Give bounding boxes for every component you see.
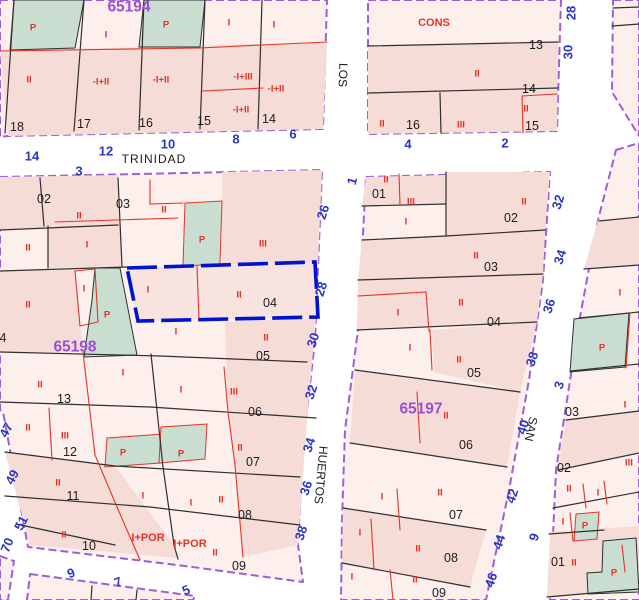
parcel-number-label: 14 bbox=[522, 82, 536, 96]
floor-label: I bbox=[142, 491, 145, 502]
parcel-number-label: 03 bbox=[565, 405, 579, 419]
floor-label: II bbox=[25, 300, 30, 311]
parcel-number-label: 13 bbox=[529, 38, 543, 52]
parcel-number-label: 15 bbox=[197, 114, 211, 128]
green-parcel[interactable] bbox=[10, 0, 84, 50]
cadastral-map: PIPIIII-I+II-I+II-I+III-I+II-I+IICONSIII… bbox=[0, 0, 639, 600]
floor-label: I bbox=[381, 492, 384, 503]
parcel-number-label: 16 bbox=[406, 118, 420, 132]
floor-label: II bbox=[473, 251, 478, 262]
floor-label: II bbox=[412, 575, 417, 586]
floor-label: I bbox=[405, 217, 408, 228]
house-number-label: 46 bbox=[482, 571, 501, 589]
floor-label: I bbox=[597, 488, 600, 499]
parcel-number-label: 08 bbox=[444, 551, 458, 565]
floor-label: P bbox=[163, 20, 170, 31]
parcel-number-label: 05 bbox=[467, 366, 481, 380]
house-number-label: 70 bbox=[0, 535, 17, 554]
floor-label: II bbox=[437, 488, 442, 499]
parcel-number-label: 07 bbox=[449, 508, 463, 522]
floor-label: -I+III bbox=[233, 72, 252, 83]
floor-label: III bbox=[457, 120, 465, 131]
floor-label: I bbox=[105, 30, 108, 41]
floor-label: II bbox=[474, 69, 479, 80]
floor-label: II bbox=[236, 290, 241, 301]
floor-label: P bbox=[199, 235, 206, 246]
parcel-number-label: 01 bbox=[372, 187, 386, 201]
parcel-number-label: 12 bbox=[63, 445, 77, 459]
street-name-label: SAN bbox=[522, 415, 541, 442]
floor-label: I+POR bbox=[173, 538, 206, 550]
floor-label: -I+II bbox=[233, 105, 250, 116]
house-number-label: 10 bbox=[161, 137, 175, 152]
floor-label: P bbox=[178, 449, 185, 460]
floor-label: II bbox=[571, 558, 576, 569]
house-number-label: 1 bbox=[344, 176, 360, 187]
parcel-number-label: 08 bbox=[238, 508, 252, 522]
parcel-number-label: 06 bbox=[248, 405, 262, 419]
floor-label: -I+II bbox=[268, 84, 285, 95]
green-parcel[interactable] bbox=[105, 434, 163, 467]
floor-label: II bbox=[263, 333, 268, 344]
floor-label: II bbox=[161, 205, 166, 216]
floor-label: II bbox=[76, 211, 81, 222]
floor-label: I bbox=[83, 284, 86, 295]
house-number-label: 30 bbox=[561, 45, 576, 59]
parcel-number-label: 04 bbox=[263, 296, 277, 310]
floor-label: II bbox=[458, 298, 463, 309]
floor-label: II bbox=[566, 484, 571, 495]
house-number-label: 34 bbox=[300, 435, 319, 454]
house-number-label: 32 bbox=[302, 383, 321, 401]
parcel-number-label: 13 bbox=[57, 392, 71, 406]
floor-label: I bbox=[619, 288, 622, 299]
parcel-number-label: 02 bbox=[504, 211, 518, 225]
block-id-label: 65194 bbox=[107, 0, 150, 16]
floor-label: I bbox=[190, 498, 193, 509]
floor-label: I bbox=[122, 368, 125, 379]
floor-label: II bbox=[25, 423, 30, 434]
house-number-label: 28 bbox=[312, 280, 331, 298]
floor-label: P bbox=[582, 521, 589, 532]
parcel-number-label: 17 bbox=[77, 117, 91, 131]
parcel-number-label: 07 bbox=[246, 455, 260, 469]
floor-label: III bbox=[625, 458, 633, 469]
street-name-label: TRINIDAD bbox=[122, 152, 187, 166]
floor-label: I bbox=[180, 385, 183, 396]
parcel-number-label: 02 bbox=[557, 461, 571, 475]
floor-label: III bbox=[259, 239, 267, 250]
floor-label: I bbox=[351, 572, 354, 583]
floor-label: II bbox=[212, 548, 217, 559]
parcel-number-label: 01 bbox=[551, 555, 565, 569]
floor-label: II bbox=[218, 495, 223, 506]
floor-label: III bbox=[407, 197, 415, 208]
house-number-label: 42 bbox=[503, 487, 522, 505]
house-number-label: 12 bbox=[99, 144, 113, 159]
parcel-number-label: 02 bbox=[37, 192, 51, 206]
parcel-number-label: 10 bbox=[82, 539, 96, 553]
floor-label: II bbox=[37, 380, 42, 391]
house-number-label: 26 bbox=[314, 203, 333, 221]
floor-label: P bbox=[599, 343, 606, 354]
floor-label: I+POR bbox=[131, 532, 164, 544]
parcel-number-label: 04 bbox=[487, 315, 501, 329]
parcel-number-label: 09 bbox=[232, 559, 246, 573]
house-number-label: 38 bbox=[523, 350, 542, 368]
floor-label: P bbox=[104, 310, 111, 321]
block-bottom[interactable] bbox=[27, 574, 195, 600]
floor-label: I bbox=[175, 327, 178, 338]
house-number-label: 36 bbox=[540, 297, 559, 315]
house-number-label: 28 bbox=[564, 6, 579, 20]
floor-label: II bbox=[523, 104, 528, 115]
parcel-number-label: 18 bbox=[10, 120, 24, 134]
parcel-number-label: 03 bbox=[116, 197, 130, 211]
floor-label: I bbox=[228, 18, 231, 29]
floor-label: II bbox=[443, 411, 448, 422]
block-top-right[interactable] bbox=[612, 0, 639, 136]
floor-label: I bbox=[562, 517, 565, 528]
block-bottom-sliver[interactable] bbox=[0, 556, 14, 600]
floor-label: II bbox=[237, 443, 242, 454]
house-number-label: 32 bbox=[549, 193, 568, 211]
floor-label: I bbox=[397, 308, 400, 319]
floor-label: II bbox=[61, 530, 66, 541]
floor-label: I bbox=[409, 343, 412, 354]
parcel-number-label: 06 bbox=[459, 438, 473, 452]
house-number-label: 6 bbox=[289, 127, 296, 142]
house-number-label: 14 bbox=[25, 149, 40, 164]
floor-label: P bbox=[30, 23, 37, 34]
house-number-label: 9 bbox=[526, 531, 543, 543]
floor-label: II bbox=[25, 243, 30, 254]
parcel-number-label: 4 bbox=[0, 331, 7, 345]
house-number-label: 38 bbox=[292, 524, 311, 542]
floor-label: -I+II bbox=[153, 75, 170, 86]
house-number-label: 4 bbox=[404, 137, 412, 152]
floor-label: I bbox=[147, 285, 150, 296]
house-number-label: 3 bbox=[551, 379, 568, 391]
floor-label: III bbox=[230, 387, 238, 398]
cadastral-map-viewport: PIPIIII-I+II-I+II-I+III-I+II-I+IICONSIII… bbox=[0, 0, 639, 600]
floor-label: II bbox=[521, 197, 526, 208]
floor-label: CONS bbox=[418, 17, 450, 29]
floor-label: I bbox=[359, 528, 362, 539]
floor-label: -I+II bbox=[93, 77, 110, 88]
floor-label: III bbox=[61, 431, 69, 442]
house-number-label: 44 bbox=[490, 532, 509, 551]
street-name-label: HUERTOS bbox=[311, 445, 330, 504]
floor-label: II bbox=[55, 478, 60, 489]
floor-label: II bbox=[415, 544, 420, 555]
street-name-label: LOS bbox=[336, 63, 351, 87]
parcel-number-label: 05 bbox=[256, 349, 270, 363]
floor-label: II bbox=[26, 75, 31, 86]
floor-label: I bbox=[273, 20, 276, 31]
house-number-label: 34 bbox=[551, 247, 570, 266]
floor-label: II bbox=[379, 119, 384, 130]
green-parcel[interactable] bbox=[183, 201, 222, 266]
floor-label: P bbox=[120, 448, 127, 459]
floor-label: P bbox=[611, 568, 618, 579]
floor-label: I bbox=[86, 240, 89, 251]
block-id-label: 65197 bbox=[399, 401, 442, 418]
house-number-label: 3 bbox=[75, 164, 82, 179]
parcel-number-label: 09 bbox=[432, 586, 446, 600]
parcel-number-label: 16 bbox=[139, 116, 153, 130]
house-number-label: 2 bbox=[501, 136, 508, 151]
floor-label: I bbox=[624, 400, 627, 411]
parcel-number-label: 15 bbox=[525, 119, 539, 133]
floor-label: II bbox=[383, 175, 388, 186]
house-number-label: 8 bbox=[232, 132, 239, 147]
parcel-number-label: 14 bbox=[262, 112, 276, 126]
block-id-label: 65198 bbox=[53, 339, 96, 356]
house-number-label: 30 bbox=[304, 331, 323, 349]
parcel-number-label: 11 bbox=[67, 489, 80, 503]
parcel-number-label: 03 bbox=[484, 260, 498, 274]
floor-label: II bbox=[456, 355, 461, 366]
